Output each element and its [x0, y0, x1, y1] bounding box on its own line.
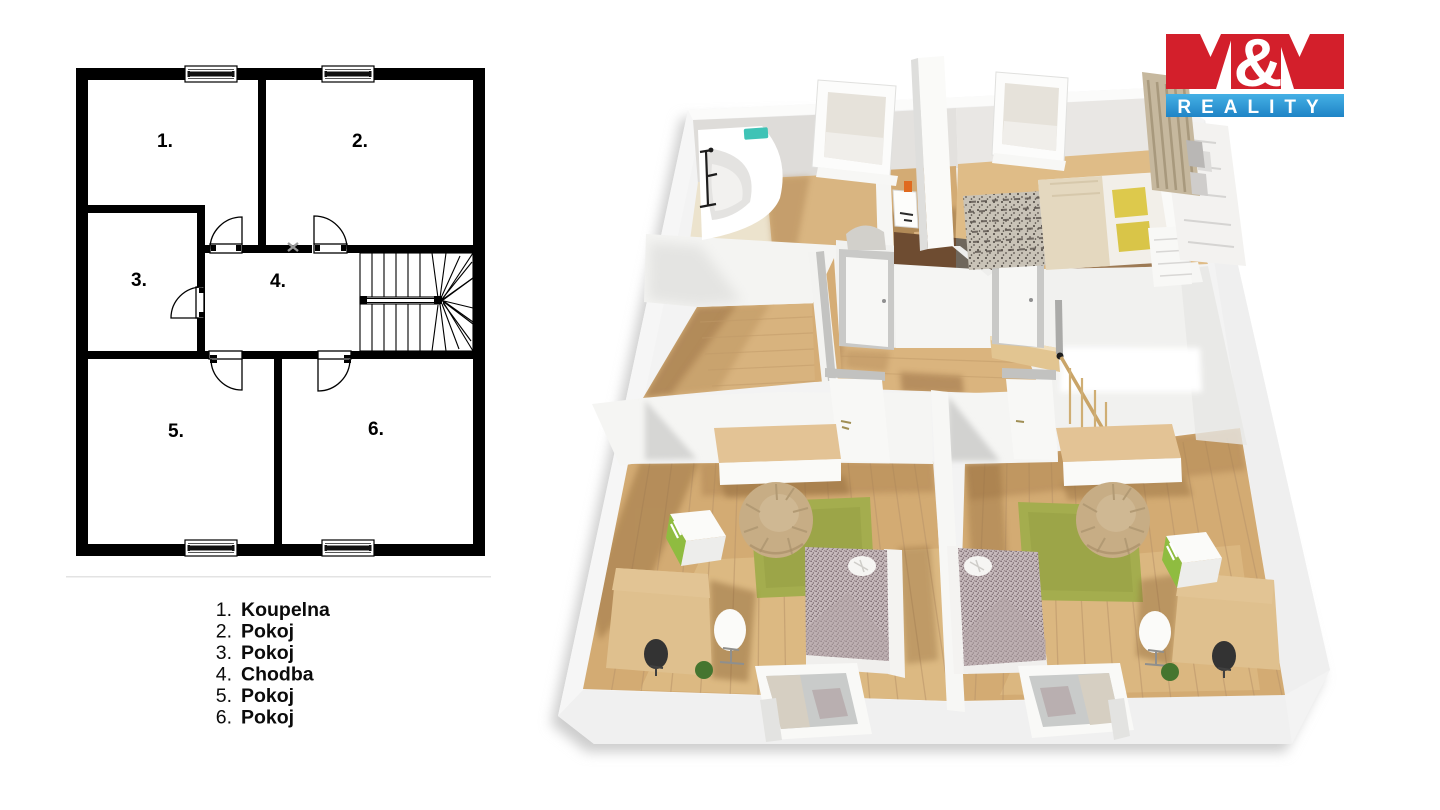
- svg-text:Pokoj: Pokoj: [241, 642, 294, 664]
- svg-text:Chodba: Chodba: [241, 664, 314, 686]
- svg-text:Pokoj: Pokoj: [241, 707, 294, 729]
- svg-text:2.: 2.: [352, 131, 368, 152]
- svg-text:5.: 5.: [168, 421, 184, 442]
- svg-text:1.: 1.: [216, 599, 232, 621]
- svg-text:3.: 3.: [131, 270, 147, 291]
- svg-text:4.: 4.: [270, 271, 286, 292]
- svg-text:Pokoj: Pokoj: [241, 685, 294, 707]
- svg-text:&: &: [1233, 25, 1282, 101]
- svg-text:6.: 6.: [368, 419, 384, 440]
- svg-text:1.: 1.: [157, 131, 173, 152]
- svg-text:2.: 2.: [216, 621, 232, 643]
- svg-text:Pokoj: Pokoj: [241, 621, 294, 643]
- svg-text:3.: 3.: [216, 642, 232, 664]
- svg-text:Koupelna: Koupelna: [241, 599, 330, 621]
- svg-text:5.: 5.: [216, 685, 232, 707]
- svg-text:6.: 6.: [216, 707, 232, 729]
- svg-text:REALITY: REALITY: [1177, 97, 1328, 118]
- svg-text:4.: 4.: [216, 664, 232, 686]
